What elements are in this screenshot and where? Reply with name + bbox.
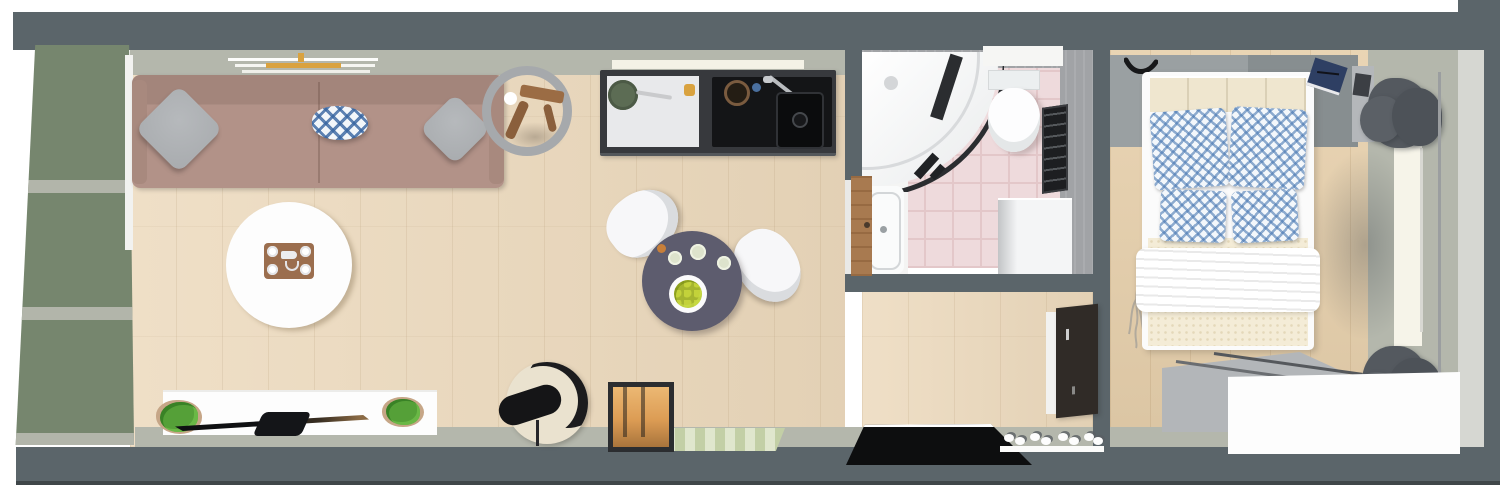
plate: [690, 244, 706, 260]
bathroom-wall-bottom: [845, 274, 1110, 292]
round-mirror[interactable]: [482, 66, 572, 156]
lantern-bar: [623, 387, 627, 437]
bed-pillow[interactable]: [1228, 106, 1308, 190]
gold-decor: [266, 63, 341, 68]
potted-plant[interactable]: [386, 399, 420, 425]
pot: [724, 80, 750, 106]
top-wall: [13, 12, 1500, 50]
window-pane-line: [1420, 148, 1423, 332]
cabinet-handle: [1072, 386, 1075, 394]
wardrobe-divider: [12, 180, 134, 193]
tall-cabinet[interactable]: [1056, 304, 1098, 418]
gold-decor: [298, 53, 304, 62]
chair-leg: [536, 420, 539, 446]
bathroom-door[interactable]: [851, 176, 872, 276]
corner-shower[interactable]: [862, 52, 1004, 192]
shoe: [1004, 434, 1014, 442]
frying-pan[interactable]: [608, 80, 638, 110]
wardrobe-divider: [12, 307, 134, 320]
nightstand-item: [1353, 73, 1372, 97]
teapot: [281, 251, 297, 259]
pen: [1317, 71, 1339, 75]
cup: [267, 246, 278, 257]
kitchen-wall-shelf[interactable]: [612, 60, 804, 69]
curtain-top-fold: [1392, 88, 1442, 146]
mirror-ball: [504, 92, 517, 105]
soap-dispenser: [752, 83, 761, 92]
right-wall: [1484, 0, 1500, 484]
balcony-strip: [1458, 50, 1484, 447]
shoe: [1069, 437, 1079, 445]
wardrobe-divider: [12, 433, 134, 445]
sink-drain: [792, 112, 808, 128]
bed-pillow[interactable]: [1159, 189, 1227, 243]
cup: [300, 264, 311, 275]
shelf-board: [242, 70, 370, 73]
candle-lantern[interactable]: [608, 382, 674, 452]
faucet-base: [763, 76, 773, 83]
plate: [668, 251, 682, 265]
shoe: [1041, 437, 1051, 445]
cabinet-handle: [1066, 329, 1069, 340]
toilet-tank: [988, 70, 1040, 90]
shower-drain: [884, 76, 898, 90]
shoe: [1093, 437, 1103, 445]
toilet-shelf: [983, 46, 1063, 66]
shoe: [1015, 437, 1025, 445]
plate: [717, 256, 731, 270]
washing-machine[interactable]: [998, 198, 1072, 274]
cup: [267, 264, 278, 275]
orange-fruit: [657, 244, 666, 253]
striped-rug[interactable]: [655, 428, 785, 451]
serving-tray[interactable]: [264, 243, 314, 279]
cup: [300, 246, 311, 257]
floor-plan: [0, 0, 1500, 499]
blue-pillow[interactable]: [312, 106, 368, 140]
dresser-front[interactable]: [1228, 372, 1460, 454]
fruit: [674, 280, 702, 308]
shoe: [1058, 433, 1068, 441]
headboard-cushion: [1150, 76, 1306, 112]
wardrobe[interactable]: [12, 45, 134, 445]
bed-pillow[interactable]: [1149, 107, 1230, 190]
toilet[interactable]: [988, 88, 1040, 152]
gold-jar: [684, 84, 695, 96]
shoe: [1030, 433, 1040, 441]
tub-drain: [880, 226, 887, 233]
blanket: [1136, 248, 1320, 312]
lantern-bar: [641, 387, 645, 437]
bathroom-mirror[interactable]: [1042, 104, 1068, 194]
shoe-rack[interactable]: [1000, 428, 1104, 454]
door-knob: [864, 222, 870, 228]
teapot-handle: [285, 261, 299, 271]
bed-pillow[interactable]: [1231, 188, 1300, 243]
window[interactable]: [1394, 140, 1422, 346]
shoe-shelf-board: [1000, 446, 1104, 452]
top-right-corner-wall: [1458, 0, 1500, 50]
wall-shelf[interactable]: [228, 56, 383, 74]
